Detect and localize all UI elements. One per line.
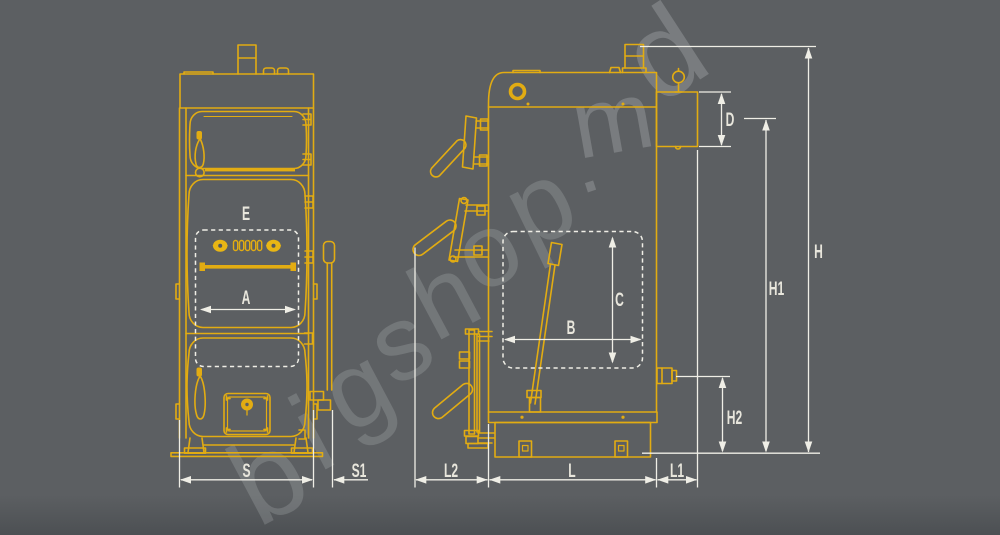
svg-text:D: D bbox=[726, 109, 735, 131]
svg-text:S1: S1 bbox=[352, 460, 367, 482]
svg-text:L1: L1 bbox=[670, 460, 684, 482]
svg-text:H: H bbox=[814, 241, 823, 263]
svg-text:E: E bbox=[242, 203, 250, 225]
svg-text:B: B bbox=[567, 317, 576, 339]
svg-text:C: C bbox=[615, 289, 624, 311]
svg-text:H2: H2 bbox=[727, 407, 742, 429]
svg-text:L: L bbox=[568, 460, 575, 482]
svg-text:H1: H1 bbox=[769, 278, 784, 300]
svg-text:S: S bbox=[242, 460, 250, 482]
svg-text:L2: L2 bbox=[444, 460, 458, 482]
svg-text:A: A bbox=[242, 287, 251, 309]
